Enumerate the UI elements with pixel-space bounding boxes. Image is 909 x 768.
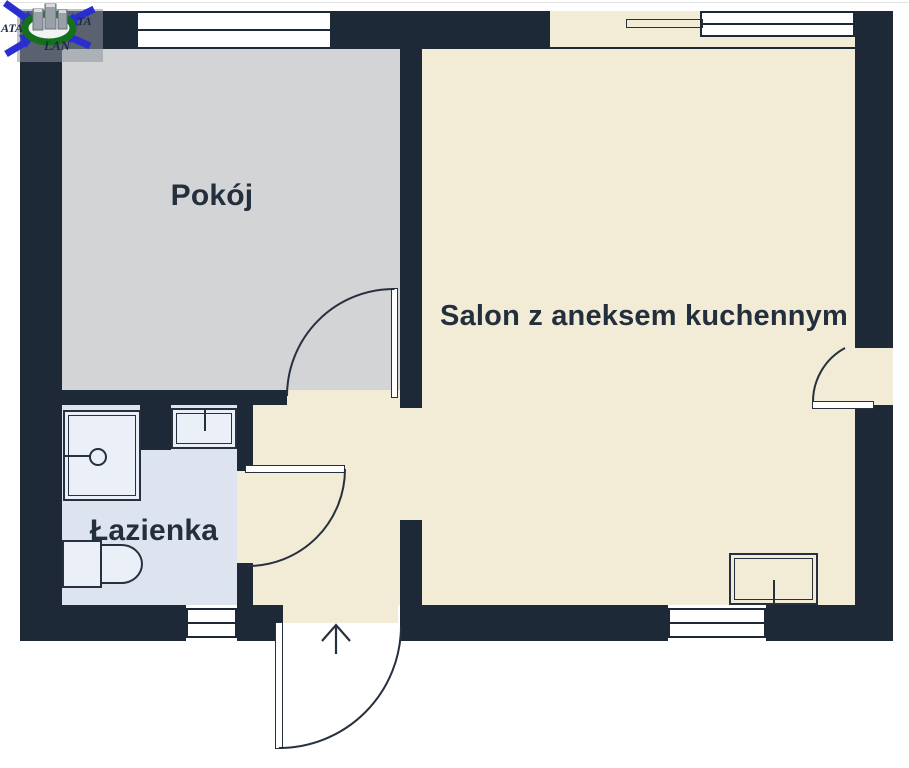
wall-bottom-4 (766, 605, 893, 641)
logo-text-bottom: LAN (44, 39, 70, 52)
window-mullion (669, 622, 765, 624)
room-label-lazienka: Łazienka (54, 516, 254, 546)
wall-lazienka-right-upper (237, 405, 253, 471)
wall-pokoj-salon (400, 11, 422, 408)
lazienka-door-leaf (245, 465, 345, 473)
sink-icon (171, 408, 237, 449)
wall-pokoj-bottom (62, 390, 287, 405)
window-salon-bottom (668, 608, 766, 638)
recess-edge-line (550, 47, 855, 49)
wall-bottom-1 (20, 605, 186, 641)
pokoj-door-leaf (391, 288, 398, 398)
pokoj-door-gap (287, 390, 400, 405)
toilet-bowl (100, 544, 143, 584)
entrance-door-arc (279, 626, 401, 748)
sink-tap-line (204, 410, 206, 431)
hallway-floor (253, 405, 400, 605)
shower-drain (89, 448, 107, 466)
toilet-icon (62, 540, 143, 588)
hall-salon-passage (400, 408, 422, 520)
room-label-salon: Salon z aneksem kuchennym (424, 302, 864, 331)
window-pokoj-top (136, 11, 332, 49)
toilet-tank (62, 540, 102, 588)
logo-text-right: TA (77, 15, 92, 27)
logo-text-left: ATA (1, 22, 23, 34)
balcony-door-leaf (812, 401, 874, 409)
wall-right-upper (855, 11, 893, 348)
floor-plan: Pokój Salon z aneksem kuchennym Łazienka (0, 0, 909, 768)
window-salon-top (700, 11, 855, 37)
logo-watermark: ATA TA LAN (0, 0, 115, 70)
entrance-door-leaf (275, 622, 283, 749)
wall-bottom-3 (400, 605, 668, 641)
window-sill-ledge (626, 19, 703, 28)
window-mullion (137, 29, 331, 31)
wall-lazienka-stub (140, 405, 171, 450)
entrance-outside-gap (283, 623, 398, 641)
window-lazienka-bottom (186, 608, 237, 638)
wall-hall-salon (400, 520, 422, 641)
room-pokoj-floor (62, 49, 400, 390)
page-top-line (0, 2, 909, 3)
room-label-pokoj: Pokój (112, 181, 312, 211)
shower-icon (63, 410, 141, 501)
kitchen-sink-icon (729, 553, 818, 605)
window-mullion (701, 23, 854, 25)
entrance-threshold (283, 605, 398, 623)
window-mullion (187, 622, 236, 624)
kitchen-tap-line (773, 580, 775, 604)
wall-top-middle (332, 11, 550, 49)
wall-left (20, 11, 62, 641)
wall-lazienka-right-lower (237, 563, 253, 605)
balcony-door-gap (855, 348, 893, 405)
